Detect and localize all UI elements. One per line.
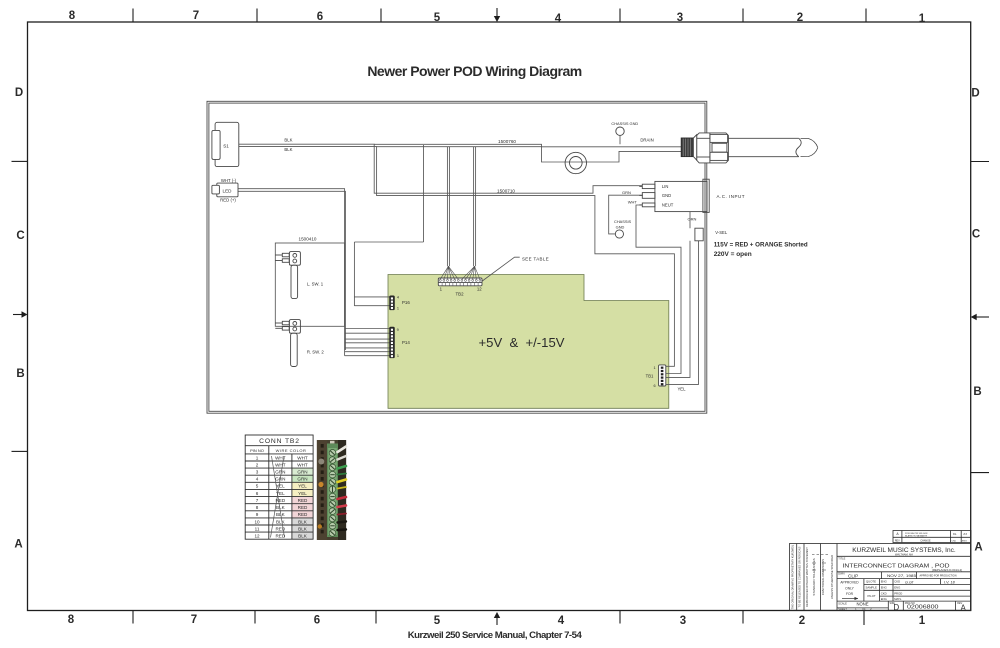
- svg-text:RED: RED: [298, 512, 308, 517]
- svg-text:GND: GND: [662, 193, 671, 198]
- svg-text:D: D: [893, 603, 899, 612]
- svg-text:GRN: GRN: [275, 470, 285, 475]
- svg-text:REV: REV: [895, 539, 900, 542]
- svg-text:12: 12: [254, 534, 260, 539]
- svg-text:P14: P14: [402, 340, 410, 345]
- svg-text:1: 1: [919, 13, 926, 25]
- svg-text:02006800: 02006800: [907, 605, 939, 611]
- svg-text:RED: RED: [275, 526, 285, 531]
- svg-text:1: 1: [256, 455, 259, 460]
- svg-text:CKD: CKD: [952, 540, 957, 542]
- svg-text:R. SW. 2: R. SW. 2: [307, 350, 325, 355]
- svg-text:220V = open: 220V = open: [714, 251, 752, 258]
- svg-text:WIRE COLOR: WIRE COLOR: [276, 448, 307, 453]
- svg-text:1500710: 1500710: [497, 188, 515, 193]
- svg-text:SAMPLE: SAMPLE: [866, 586, 877, 590]
- svg-text:D: D: [15, 87, 23, 99]
- svg-text:STANDARD TOLERANCES: STANDARD TOLERANCES: [812, 558, 816, 595]
- svg-text:A: A: [961, 604, 967, 613]
- svg-text:WHT (-): WHT (-): [221, 178, 237, 183]
- svg-text:4: 4: [555, 13, 562, 25]
- svg-text:3: 3: [680, 615, 686, 627]
- svg-text:KJ: KJ: [964, 532, 968, 536]
- svg-text:6: 6: [317, 11, 323, 23]
- svg-text:B: B: [16, 368, 24, 380]
- svg-text:GND: GND: [616, 224, 625, 229]
- svg-text:A: A: [14, 539, 22, 551]
- svg-text:7: 7: [193, 10, 199, 22]
- svg-text:3: 3: [256, 470, 259, 475]
- svg-text:BLK: BLK: [276, 519, 286, 524]
- svg-text:APPROVED: APPROVED: [840, 581, 859, 585]
- svg-text:OF: OF: [862, 607, 866, 611]
- svg-text:DWN: DWN: [838, 572, 844, 576]
- svg-text:CKD: CKD: [881, 591, 887, 595]
- svg-text:1: 1: [397, 354, 399, 358]
- svg-text:12: 12: [477, 286, 482, 291]
- svg-text:1500760: 1500760: [498, 139, 516, 144]
- svg-text:115V = RED + ORANGE Shorted: 115V = RED + ORANGE Shorted: [714, 242, 808, 249]
- svg-text:P16: P16: [402, 300, 410, 305]
- svg-text:ENG: ENG: [894, 586, 900, 590]
- svg-text:5: 5: [256, 484, 259, 489]
- svg-text:6: 6: [256, 491, 259, 496]
- svg-text:A.C. INPUT: A.C. INPUT: [717, 194, 746, 199]
- svg-text:GRN: GRN: [622, 190, 631, 195]
- svg-text:FOR: FOR: [846, 592, 854, 596]
- svg-text:GRN: GRN: [297, 470, 307, 475]
- svg-text:5: 5: [434, 615, 441, 627]
- svg-text:9: 9: [397, 328, 399, 332]
- svg-text:WHT: WHT: [628, 200, 638, 205]
- svg-text:SCALE: SCALE: [838, 601, 847, 605]
- svg-text:G.Gf: G.Gf: [905, 581, 914, 585]
- svg-text:L. SW. 1: L. SW. 1: [307, 282, 324, 287]
- svg-text:ENG: ENG: [962, 540, 967, 542]
- svg-text:2: 2: [797, 12, 803, 24]
- svg-text:1: 1: [653, 366, 655, 370]
- svg-text:4: 4: [256, 477, 259, 482]
- svg-text:CONN TB2: CONN TB2: [259, 438, 300, 445]
- svg-text:V-SEL: V-SEL: [715, 230, 728, 235]
- svg-text:RED (+): RED (+): [220, 197, 236, 202]
- svg-text:YEL: YEL: [276, 484, 285, 489]
- svg-text:YEL: YEL: [298, 491, 307, 496]
- svg-text:PROD: PROD: [894, 591, 902, 595]
- svg-text:NONE: NONE: [857, 602, 869, 607]
- svg-text:NOV 27, 1985: NOV 27, 1985: [887, 573, 917, 578]
- svg-text:+5V & +/-15V: +5V & +/-15V: [479, 335, 565, 350]
- svg-text:BLK: BLK: [298, 519, 308, 524]
- svg-text:3: 3: [677, 12, 683, 24]
- svg-text:1500410: 1500410: [299, 237, 317, 242]
- svg-text:NEUT: NEUT: [662, 203, 674, 208]
- svg-text:APPROVED FOR PRODUCTION: APPROVED FOR PRODUCTION: [920, 573, 957, 577]
- svg-text:UNLESS OTHERWISE SPECIFIED: UNLESS OTHERWISE SPECIFIED: [830, 555, 834, 599]
- svg-text:TO BE RELEASED TO COMPANIES OR: TO BE RELEASED TO COMPANIES OR PERSONS: [798, 546, 802, 607]
- svg-text:YEL: YEL: [677, 387, 686, 392]
- svg-text:ORN: ORN: [687, 217, 696, 222]
- svg-text:I.V. 18: I.V. 18: [944, 581, 956, 585]
- svg-text:BLK: BLK: [276, 505, 286, 510]
- svg-text:4: 4: [397, 295, 399, 299]
- svg-text:9: 9: [256, 512, 259, 517]
- svg-text:7: 7: [191, 614, 197, 626]
- svg-text:REPRODUCED WITHOUT WRITTEN STA: REPRODUCED WITHOUT WRITTEN STATEMENT: [805, 547, 809, 607]
- svg-text:4: 4: [558, 615, 565, 627]
- svg-text:C: C: [972, 229, 980, 241]
- svg-text:WHT: WHT: [297, 455, 308, 460]
- svg-text:Newer Power POD Wiring Diagram: Newer Power POD Wiring Diagram: [367, 63, 581, 79]
- svg-text:THE ORIGINAL DRAWING PROPRIETA: THE ORIGINAL DRAWING PROPRIETARY KURZWEI…: [791, 544, 795, 609]
- svg-text:POR WH PW 5W GKN: POR WH PW 5W GKN: [905, 533, 928, 535]
- svg-text:6: 6: [314, 615, 320, 627]
- svg-text:RED: RED: [298, 498, 308, 503]
- svg-text:BLK: BLK: [298, 534, 308, 539]
- svg-text:ENG: ENG: [881, 580, 887, 584]
- svg-text:1: 1: [397, 306, 399, 310]
- svg-text:BLAHN /TOTA BANTR: BLAHN /TOTA BANTR: [905, 535, 927, 538]
- svg-text:BLK: BLK: [284, 138, 292, 143]
- svg-text:WHT: WHT: [297, 462, 308, 467]
- svg-text:SEE TABLE: SEE TABLE: [522, 256, 549, 261]
- svg-text:RED: RED: [298, 505, 308, 510]
- svg-text:ENG: ENG: [881, 586, 887, 590]
- svg-text:11: 11: [255, 526, 260, 531]
- svg-text:CHASSIS: CHASSIS: [614, 219, 631, 224]
- svg-text:CKD: CKD: [894, 579, 900, 583]
- svg-text:YEL: YEL: [298, 484, 307, 489]
- svg-text:DRAIN: DRAIN: [640, 137, 653, 142]
- svg-text:10: 10: [254, 519, 260, 524]
- svg-text:8: 8: [68, 614, 75, 626]
- svg-text:B: B: [973, 386, 981, 398]
- svg-text:A: A: [974, 542, 982, 554]
- svg-text:GRN: GRN: [297, 477, 307, 482]
- svg-text:TB2: TB2: [455, 292, 464, 297]
- svg-text:LED: LED: [223, 188, 233, 193]
- svg-text:D: D: [971, 88, 979, 100]
- svg-text:5: 5: [434, 12, 441, 24]
- svg-text:WALTHAM, MA: WALTHAM, MA: [895, 553, 913, 557]
- svg-text:6: 6: [653, 384, 655, 388]
- svg-text:WHT: WHT: [275, 462, 286, 467]
- svg-text:PIN NO: PIN NO: [250, 448, 264, 453]
- svg-text:TITLE: TITLE: [838, 557, 845, 561]
- svg-text:SHEET: SHEET: [838, 607, 847, 611]
- svg-text:LIN: LIN: [662, 184, 669, 189]
- svg-text:KL: KL: [953, 532, 957, 536]
- svg-text:2: 2: [799, 615, 805, 627]
- svg-text:ENG: ENG: [881, 597, 887, 601]
- svg-text:(REPLACES D-0414-2): (REPLACES D-0414-2): [932, 568, 962, 572]
- svg-text:CHASSIS GND: CHASSIS GND: [611, 121, 638, 126]
- svg-text:Kurzweil 250 Service Manual, C: Kurzweil 250 Service Manual, Chapter 7-5…: [408, 630, 583, 641]
- svg-text:MATL: MATL: [894, 597, 902, 601]
- svg-text:ONLY: ONLY: [845, 586, 855, 590]
- svg-text:7: 7: [256, 498, 259, 503]
- svg-text:1: 1: [919, 615, 926, 627]
- svg-text:BLK: BLK: [298, 526, 308, 531]
- svg-text:8: 8: [69, 10, 76, 22]
- svg-text:CLIP: CLIP: [848, 574, 858, 579]
- svg-text:PILOT: PILOT: [868, 594, 876, 598]
- svg-text:C: C: [16, 230, 24, 242]
- svg-text:2: 2: [256, 462, 259, 467]
- svg-text:QUOTE: QUOTE: [866, 580, 876, 584]
- svg-text:TB1: TB1: [646, 374, 654, 379]
- svg-text:BLK: BLK: [284, 147, 292, 152]
- svg-text:CHANGE: CHANGE: [920, 539, 931, 542]
- svg-text:FRACTIONAL DIMENSIONS: FRACTIONAL DIMENSIONS: [821, 559, 825, 595]
- svg-text:8: 8: [256, 505, 259, 510]
- svg-text:S1: S1: [223, 144, 229, 149]
